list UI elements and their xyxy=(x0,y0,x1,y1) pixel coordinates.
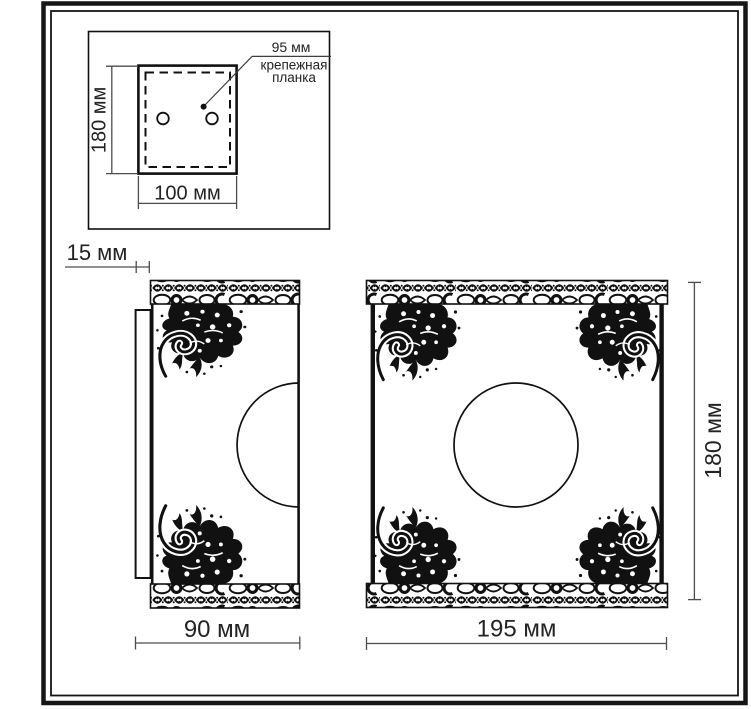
side-plate-depth-label: 15 мм xyxy=(67,240,128,265)
side-depth-dimension: 90 мм xyxy=(135,616,300,650)
front-view: 195 мм 180 мм xyxy=(366,281,726,651)
corner-ornament xyxy=(374,507,460,584)
mounting-hole-left xyxy=(157,113,169,125)
side-view: 15 мм 90 мм xyxy=(65,240,300,650)
front-width-dimension: 195 мм xyxy=(366,616,667,651)
lamp-dimension-drawing-page: 180 мм 100 мм 95 мм крепежная планка xyxy=(0,0,751,709)
corner-ornament xyxy=(156,304,246,377)
side-depth-label: 90 мм xyxy=(184,616,250,643)
front-width-label: 195 мм xyxy=(477,616,557,643)
side-decorative-band-bottom xyxy=(151,584,300,608)
wall-bracket-side xyxy=(136,310,151,578)
hole-pitch-label: 95 мм xyxy=(272,39,311,55)
glass-diffuser-circle xyxy=(454,383,578,507)
mounting-hole-right xyxy=(206,113,218,125)
note-line-2: планка xyxy=(272,70,316,85)
front-decorative-band-top xyxy=(367,281,668,305)
corner-ornament xyxy=(576,304,662,381)
leader-dot xyxy=(201,104,207,110)
inset-height-label: 180 мм xyxy=(89,87,111,153)
corner-ornament xyxy=(374,304,460,381)
corner-ornament xyxy=(576,507,662,584)
front-height-label: 180 мм xyxy=(700,402,726,478)
front-height-dimension: 180 мм xyxy=(688,282,726,600)
inset-width-label: 100 мм xyxy=(154,183,220,205)
shade-profile-arc xyxy=(237,383,299,507)
technical-drawing: 180 мм 100 мм 95 мм крепежная планка xyxy=(0,0,751,709)
corner-ornament xyxy=(156,505,246,584)
mounting-plate-detail-inset: 180 мм 100 мм 95 мм крепежная планка xyxy=(89,32,332,230)
side-plate-depth-dimension: 15 мм xyxy=(65,240,150,273)
side-decorative-band-top xyxy=(151,281,300,305)
front-decorative-band-bottom xyxy=(367,584,668,608)
mounting-plate-outline xyxy=(138,66,236,174)
